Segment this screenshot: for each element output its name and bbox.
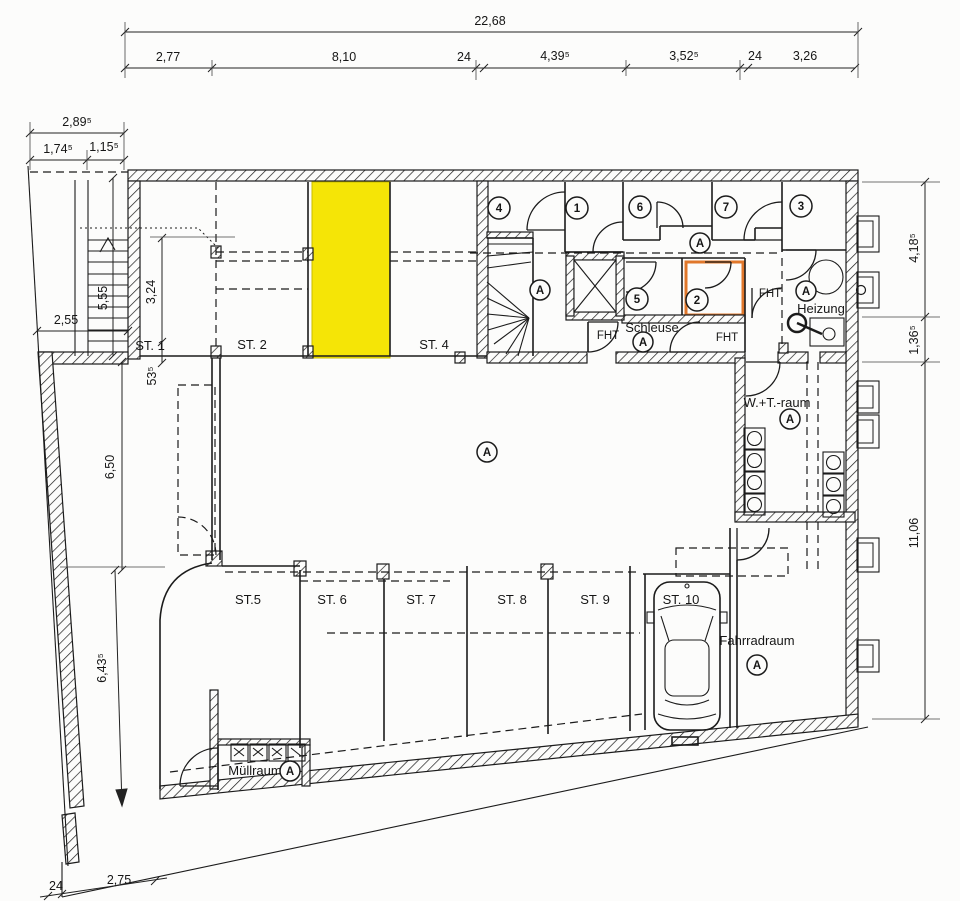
unit-circle-5: 5: [634, 294, 641, 306]
floor-plan-page: 22,68 2,77 8,10 24 4,39⁵ 3,52⁵ 24 3,26 2…: [0, 0, 960, 901]
zone-a-circle: A: [786, 414, 794, 426]
fht-label: FHT: [759, 288, 781, 300]
room-label-heizung: Heizung: [797, 301, 845, 316]
highlighted-room-yellow: [312, 182, 390, 358]
dim-seg: 2,77: [156, 50, 180, 64]
zone-a-circle: A: [286, 766, 294, 778]
dim-seg: 2,89⁵: [62, 115, 92, 129]
room-label-muellraum: Müllraum: [228, 763, 281, 778]
exterior-staircase: [75, 180, 128, 356]
zone-a-circle: A: [802, 286, 810, 298]
dim-seg: 1,36⁵: [907, 325, 921, 355]
dim-seg: 2,75: [107, 873, 131, 887]
dim-seg: 53⁵: [145, 366, 159, 385]
room-label-st8: ST. 8: [497, 592, 527, 607]
dim-seg: 6,50: [103, 455, 117, 479]
zone-a-circle: A: [639, 337, 647, 349]
dim-seg: 1,74⁵: [43, 142, 73, 156]
light-wells: [857, 216, 880, 672]
dim-total-width: 22,68: [474, 14, 505, 28]
dim-seg: 5,55: [96, 286, 110, 310]
waste-bin-icons: [231, 744, 305, 761]
room-label-st5: ST.5: [235, 592, 261, 607]
room-label-st10: ST. 10: [663, 592, 700, 607]
room-label-st4: ST. 4: [419, 337, 449, 352]
fht-label: FHT: [716, 332, 738, 344]
dim-seg: 24: [49, 879, 63, 893]
dim-seg: 4,18⁵: [907, 233, 921, 263]
dim-seg: 24: [457, 50, 471, 64]
unit-circle-4: 4: [496, 203, 503, 215]
room-label-st7: ST. 7: [406, 592, 436, 607]
winder-staircase: [487, 244, 533, 356]
dim-seg: 24: [748, 49, 762, 63]
dim-seg: 4,39⁵: [540, 49, 570, 63]
zone-a-circle: A: [753, 660, 761, 672]
unit-circle-1: 1: [574, 203, 581, 215]
dim-seg: 6,43⁵: [95, 653, 109, 683]
room-label-schleuse: Schleuse: [625, 320, 678, 335]
washing-machine-icons: [744, 428, 844, 517]
dim-seg: 2,55: [54, 313, 78, 327]
room-label-wt-raum: W.+T.-raum: [744, 395, 811, 410]
dim-seg: 11,06: [907, 518, 921, 548]
stair-guide-dotted: [80, 228, 218, 248]
dim-seg: 8,10: [332, 50, 356, 64]
walls: [38, 170, 858, 864]
dim-seg: 1,15⁵: [89, 140, 119, 154]
zone-a-circle: A: [536, 285, 544, 297]
room-label-st9: ST. 9: [580, 592, 610, 607]
room-label-fahrradraum: Fahrradraum: [719, 633, 794, 648]
zone-a-circle: A: [696, 238, 704, 250]
floor-plan-drawing: 22,68 2,77 8,10 24 4,39⁵ 3,52⁵ 24 3,26 2…: [0, 0, 960, 901]
elevator-shaft: [574, 260, 616, 312]
room-label-st6: ST. 6: [317, 592, 347, 607]
fht-label: FHT: [597, 330, 619, 342]
dim-seg: 3,26: [793, 49, 817, 63]
unit-circle-6: 6: [637, 202, 643, 214]
room-label-st2: ST. 2: [237, 337, 267, 352]
unit-circle-3: 3: [798, 201, 804, 213]
room-label-st1: ST. 1: [135, 338, 165, 353]
unit-circle-2: 2: [694, 295, 700, 307]
dim-seg: 3,52⁵: [669, 49, 699, 63]
zone-a-circle: A: [483, 447, 491, 459]
unit-circle-7: 7: [723, 202, 729, 214]
dim-seg: 3,24: [144, 280, 158, 304]
